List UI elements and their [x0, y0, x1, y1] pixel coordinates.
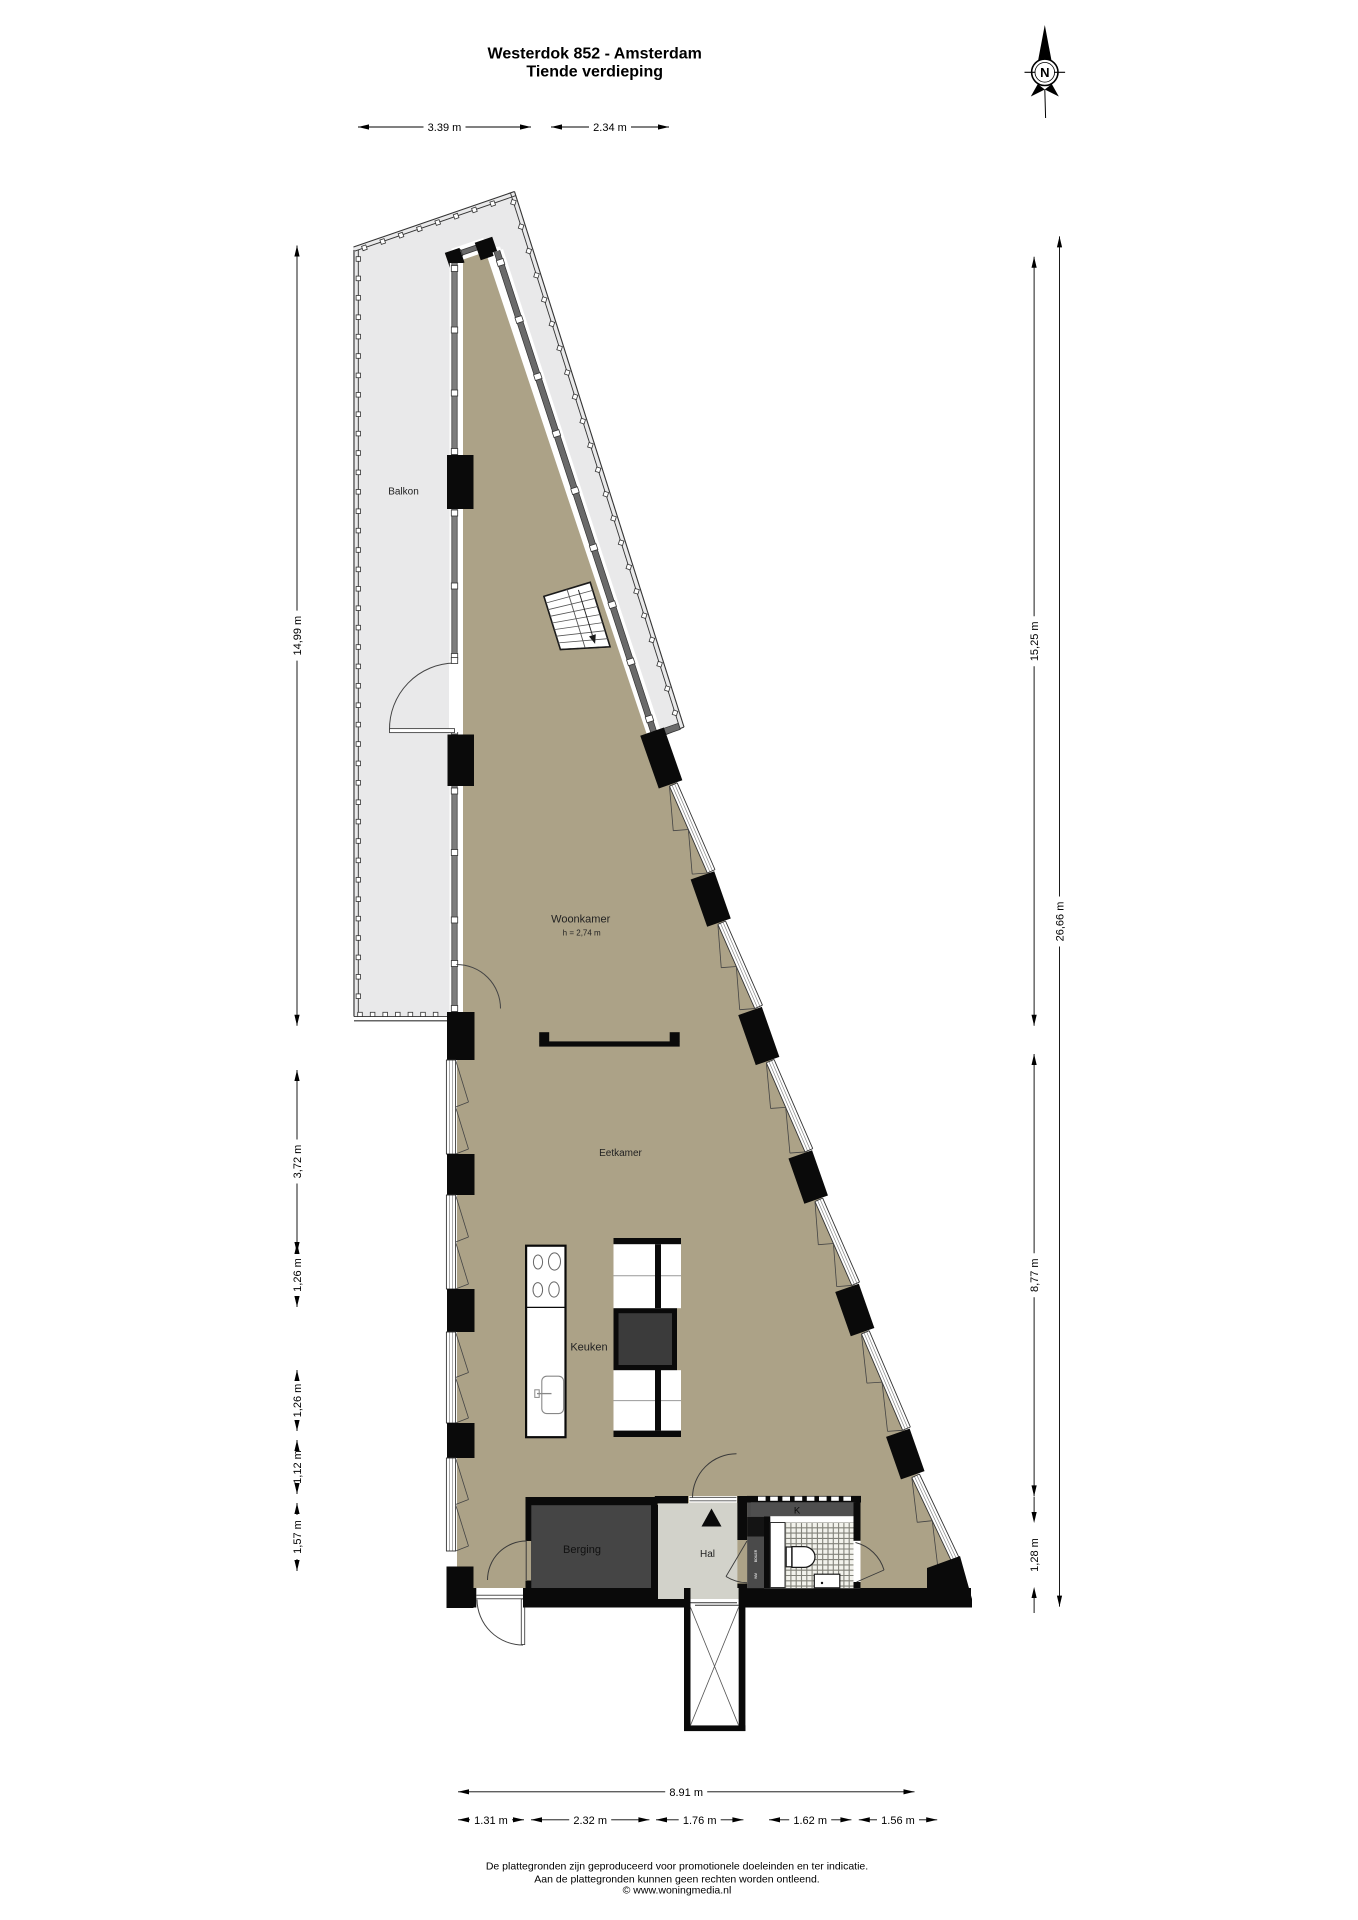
svg-text:Keuken: Keuken: [570, 1342, 607, 1354]
svg-text:Berging: Berging: [563, 1544, 601, 1556]
svg-text:Westerdok 852 - Amsterdam: Westerdok 852 - Amsterdam: [488, 46, 702, 63]
svg-text:N: N: [1040, 65, 1049, 80]
svg-text:3.39 m: 3.39 m: [428, 122, 462, 134]
svg-text:1.56 m: 1.56 m: [881, 1815, 915, 1827]
svg-text:1,28 m: 1,28 m: [1029, 1538, 1041, 1572]
svg-text:De plattegronden zijn geproduc: De plattegronden zijn geproduceerd voor …: [486, 1861, 868, 1873]
svg-text:K: K: [794, 1506, 801, 1517]
svg-text:1.62 m: 1.62 m: [793, 1815, 827, 1827]
svg-text:Balkon: Balkon: [388, 487, 419, 498]
svg-text:2.34 m: 2.34 m: [593, 122, 627, 134]
svg-text:1,12 m: 1,12 m: [292, 1450, 304, 1484]
svg-text:26,66 m: 26,66 m: [1055, 902, 1067, 942]
svg-text:8.91 m: 8.91 m: [669, 1787, 703, 1799]
svg-text:Woonkamer: Woonkamer: [551, 914, 610, 926]
svg-text:1.31 m: 1.31 m: [474, 1815, 508, 1827]
svg-text:1.76 m: 1.76 m: [683, 1815, 717, 1827]
svg-text:Hal: Hal: [700, 1549, 715, 1560]
svg-text:1,26 m: 1,26 m: [292, 1384, 304, 1418]
svg-text:Eetkamer: Eetkamer: [599, 1148, 642, 1159]
svg-text:BOILER: BOILER: [754, 1549, 758, 1562]
svg-text:h = 2,74 m: h = 2,74 m: [563, 929, 601, 938]
svg-text:Tiende verdieping: Tiende verdieping: [526, 64, 663, 81]
svg-text:1,57 m: 1,57 m: [292, 1520, 304, 1554]
svg-text:14,99 m: 14,99 m: [292, 616, 304, 656]
svg-text:2.32 m: 2.32 m: [573, 1815, 607, 1827]
svg-text:WM: WM: [754, 1573, 758, 1579]
svg-text:1,26 m: 1,26 m: [292, 1258, 304, 1292]
svg-text:8,77 m: 8,77 m: [1029, 1258, 1041, 1292]
svg-text:© www.woningmedia.nl: © www.woningmedia.nl: [623, 1885, 732, 1897]
svg-text:3,72 m: 3,72 m: [292, 1145, 304, 1179]
svg-text:15,25 m: 15,25 m: [1029, 621, 1041, 661]
